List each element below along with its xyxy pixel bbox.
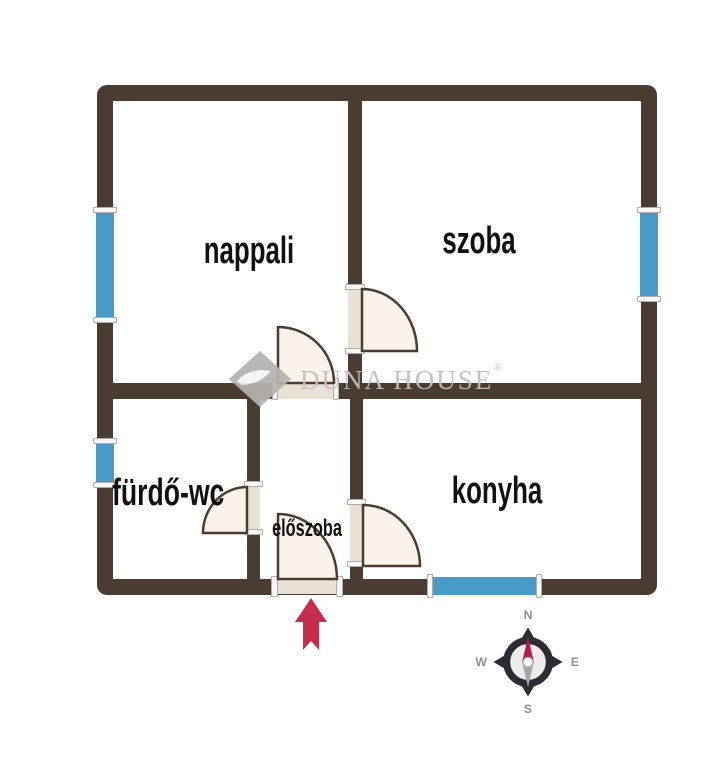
compass-label-n: N [524,608,533,622]
wall-nappali-szoba-upper [348,101,362,288]
room-label-szoba: szoba [429,222,528,260]
watermark-text: Duna House® [300,360,502,396]
door-jamb [271,576,278,597]
compass-hub [523,657,532,666]
room-label-nappali: nappali [199,232,298,270]
compass-rose: N E S W [472,606,584,718]
room-label-eloszoba: előszoba [270,517,345,541]
registered-mark: ® [493,360,502,374]
room-label-furdo-wc: fürdő-wc [112,474,224,512]
window-bottom [433,577,537,595]
door-jamb [244,529,263,535]
window-right [640,213,658,296]
wall-furdo-eloszoba-lower [247,533,260,579]
wall-eloszoba-konyha-lower [350,566,363,579]
window-cap [637,207,661,213]
outer-wall [97,85,657,595]
threshold-entrance-door [278,579,337,594]
compass-label-w: W [475,655,487,669]
room-label-konyha: konyha [447,472,546,510]
door-jamb [336,576,343,597]
compass-label-s: S [524,702,532,716]
entrance-arrow-icon [290,595,334,655]
window-cap [427,574,433,598]
compass-label-e: E [571,655,579,669]
floor-plan: nappali szoba fürdő-wc előszoba konyha D… [0,0,720,768]
window-cap [536,574,542,598]
door-jamb [347,499,366,505]
window-cap [93,207,117,213]
window-cap [93,438,117,444]
threshold-furdo-door [247,486,260,532]
watermark-word-house: House [393,365,493,395]
watermark-word-duna: Duna [300,365,385,395]
arrow-shape [295,598,327,650]
door-jamb [347,561,366,567]
threshold-konyha-door [350,504,363,565]
threshold-szoba-door [348,289,362,351]
window-left-upper [96,213,114,317]
door-jamb [345,284,365,290]
door-jamb [244,481,263,487]
duna-house-logo-icon [228,350,292,410]
window-cap [93,317,117,323]
watermark: Duna House® [228,348,488,418]
window-cap [637,296,661,302]
